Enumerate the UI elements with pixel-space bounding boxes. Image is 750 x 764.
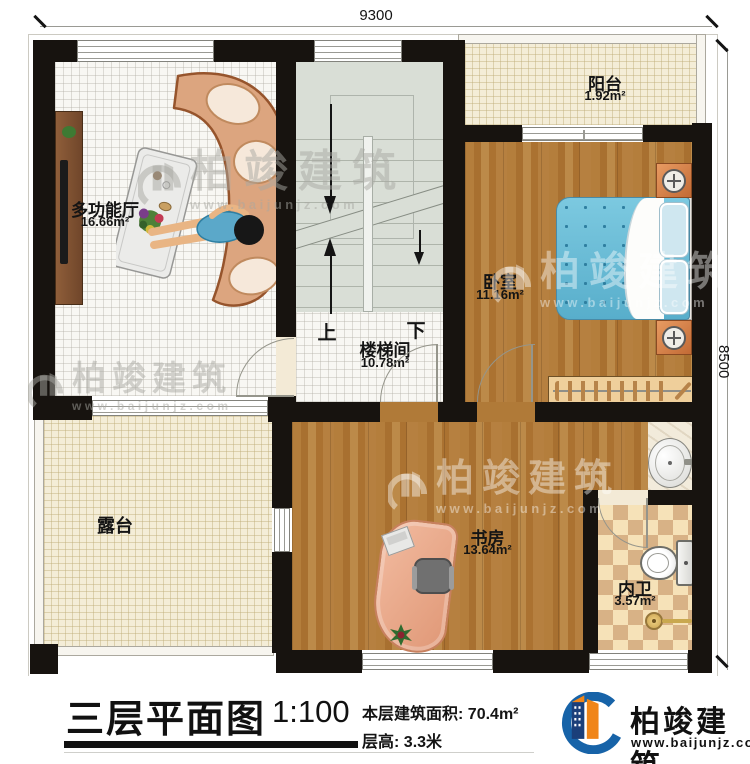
stair-arrow-shaft <box>330 104 332 196</box>
office-chair <box>414 558 452 594</box>
balcony-area: 1.92m² <box>550 88 660 103</box>
title-underline <box>64 741 358 748</box>
stair-arrow-up-icon <box>324 238 336 256</box>
stair-arrow-shaft <box>419 230 421 254</box>
wall-segment <box>276 650 362 673</box>
plant-icon <box>62 126 76 138</box>
chair-armrest <box>412 566 417 590</box>
balcony-parapet-right <box>696 34 706 126</box>
plant-icon <box>388 622 414 648</box>
window <box>314 40 402 62</box>
wall-segment <box>214 40 314 62</box>
wall-segment <box>438 402 477 422</box>
wall-segment <box>33 40 55 418</box>
wall-segment <box>33 396 92 420</box>
doorway-gap <box>477 402 535 422</box>
wall-segment <box>493 650 589 673</box>
door-leaf <box>436 344 438 402</box>
bedroom-area: 11.16m² <box>440 287 560 302</box>
wall-segment <box>272 552 292 653</box>
floor-hallway <box>583 422 648 490</box>
stair-arrow-shaft <box>330 256 332 314</box>
bathroom-area: 3.57m² <box>585 593 685 608</box>
balcony-parapet-top <box>458 34 706 44</box>
wall-segment <box>33 40 77 62</box>
floor-area-value: 70.4m² <box>468 706 519 723</box>
door-leaf <box>646 498 648 548</box>
stair-arrow-down-icon <box>324 196 336 214</box>
study-area: 13.64m² <box>430 542 545 557</box>
door-leaf <box>236 395 294 397</box>
towel-rail <box>662 619 692 623</box>
wall-segment <box>692 123 712 673</box>
nightstand <box>656 320 692 355</box>
pillow <box>660 260 688 314</box>
brand-name: 柏竣建筑 <box>630 697 750 764</box>
floor-height-value: 3.3米 <box>404 734 442 751</box>
sliding-door-terrace <box>92 400 268 416</box>
scale-label: 1:100 <box>272 694 350 730</box>
floor-area-label: 本层建筑面积: <box>362 706 463 723</box>
brand-website: www.baijunjz.com <box>631 735 750 750</box>
chair-armrest <box>449 566 454 590</box>
wall-segment <box>688 650 712 673</box>
wall-segment <box>465 125 522 142</box>
wall-segment <box>443 40 465 402</box>
wardrobe-hangers <box>555 381 665 401</box>
door-leaf <box>531 344 533 402</box>
toilet-flush-button <box>684 561 688 565</box>
floor-height-label: 层高: <box>362 734 399 751</box>
wall-segment <box>276 62 296 337</box>
brand-logo-icon <box>540 692 632 754</box>
wall-segment <box>272 420 292 508</box>
floor-height-line: 层高: 3.3米 <box>362 728 442 752</box>
multi-hall-area: 16.66m² <box>40 214 170 229</box>
title-block: 三层平面图 1:100 本层建筑面积: 70.4m² 层高: 3.3米 柏竣建筑… <box>0 676 750 764</box>
wall-segment <box>643 125 697 142</box>
toilet-bowl-inner <box>647 553 669 573</box>
terrace-name: 露台 <box>60 512 170 538</box>
doorway-gap <box>380 402 438 422</box>
lamp-icon <box>662 169 686 193</box>
lamp-icon <box>662 326 686 350</box>
wall-segment <box>583 490 598 653</box>
pillow <box>660 203 688 257</box>
floor-drain-icon <box>645 612 663 630</box>
floor-drain-center <box>652 619 656 623</box>
floor-plan-canvas: 9300 8500 上 下 楼梯间 10.78m² <box>0 0 750 764</box>
stair-railing <box>363 136 373 312</box>
floor-area-line: 本层建筑面积: 70.4m² <box>362 700 519 724</box>
wall-segment <box>648 490 697 505</box>
wall-segment <box>268 402 380 422</box>
wall-segment <box>535 402 697 422</box>
dimension-height-label: 8500 <box>714 330 732 394</box>
window <box>77 40 214 62</box>
dimension-width-label: 9300 <box>326 7 426 24</box>
nightstand <box>656 163 692 198</box>
laptop-screen <box>386 531 408 545</box>
sink-drain <box>668 461 672 465</box>
terrace-parapet-left <box>34 414 44 654</box>
plan-title: 三层平面图 <box>66 688 266 743</box>
dimension-line-top <box>40 26 712 27</box>
window <box>589 653 688 670</box>
window <box>362 653 493 670</box>
wall-corner-post <box>30 644 58 674</box>
slider-tick <box>583 130 585 139</box>
sliding-door-balcony <box>522 127 643 141</box>
terrace-parapet-bottom <box>34 646 274 656</box>
title-underline-thin <box>64 752 534 753</box>
terrace-study-door <box>274 508 290 552</box>
stair-arrow-down-icon <box>414 252 424 265</box>
